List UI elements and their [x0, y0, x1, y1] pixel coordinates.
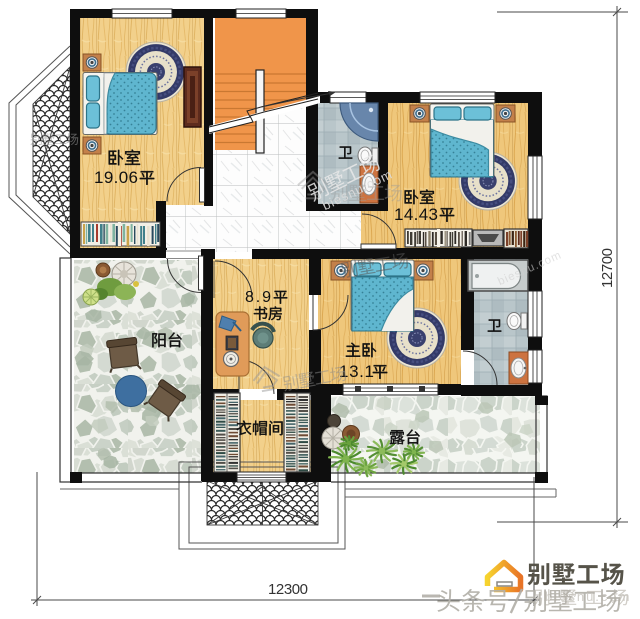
svg-text:12300: 12300	[268, 581, 308, 598]
svg-text:8.9: 8.9	[245, 289, 271, 306]
svg-text:12700: 12700	[599, 248, 616, 288]
svg-text:19.06: 19.06	[94, 168, 138, 187]
svg-text:14.43: 14.43	[394, 205, 438, 224]
